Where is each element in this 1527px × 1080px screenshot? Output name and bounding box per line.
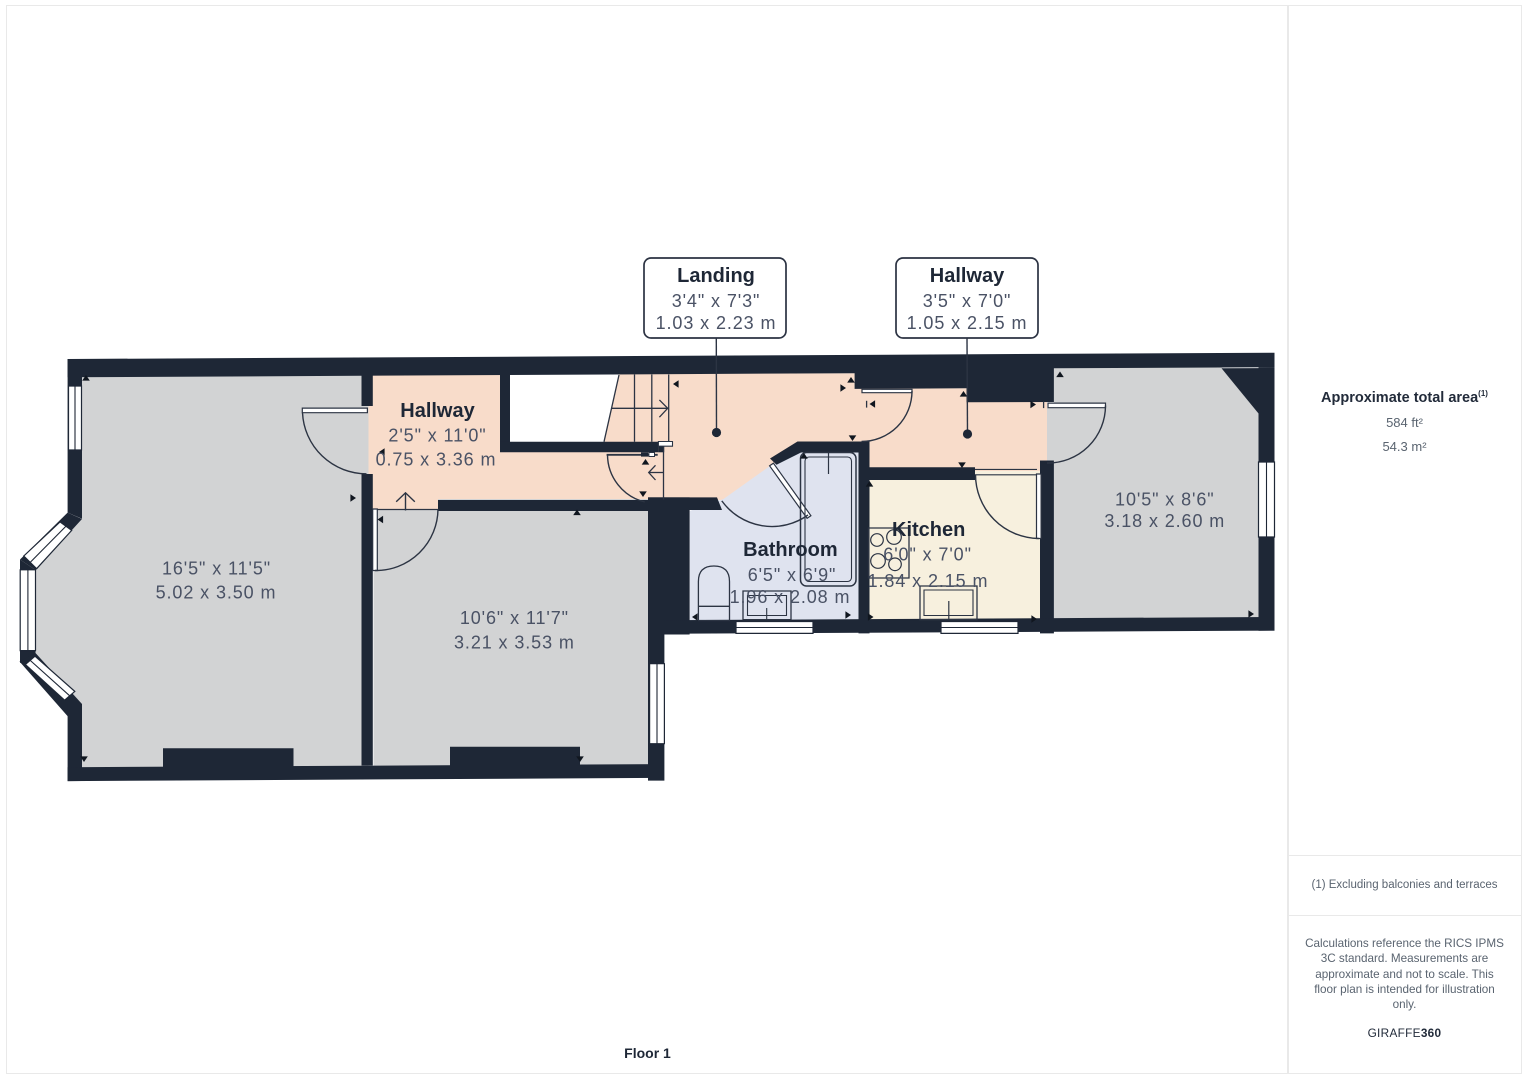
svg-text:Hallway: Hallway	[400, 400, 475, 422]
svg-text:5.02 x 3.50 m: 5.02 x 3.50 m	[156, 583, 277, 603]
svg-text:Hallway: Hallway	[930, 265, 1005, 287]
svg-text:10'6" x 11'7": 10'6" x 11'7"	[460, 608, 569, 628]
svg-text:3.21 x 3.53 m: 3.21 x 3.53 m	[454, 632, 575, 652]
svg-text:Bathroom: Bathroom	[743, 539, 837, 561]
svg-text:3'5" x 7'0": 3'5" x 7'0"	[923, 291, 1012, 311]
svg-text:2'5" x 11'0": 2'5" x 11'0"	[388, 426, 486, 446]
svg-text:1.03 x 2.23 m: 1.03 x 2.23 m	[656, 313, 777, 333]
svg-text:6'5" x 6'9": 6'5" x 6'9"	[748, 565, 837, 585]
svg-text:16'5" x 11'5": 16'5" x 11'5"	[162, 559, 271, 579]
svg-text:0.75 x 3.36 m: 0.75 x 3.36 m	[376, 450, 497, 470]
svg-text:1.84 x 2.15 m: 1.84 x 2.15 m	[868, 571, 989, 591]
svg-text:10'5" x 8'6": 10'5" x 8'6"	[1115, 489, 1215, 509]
svg-text:3.18 x 2.60 m: 3.18 x 2.60 m	[1104, 511, 1225, 531]
svg-text:6'0" x 7'0": 6'0" x 7'0"	[883, 544, 972, 564]
svg-text:1.05 x 2.15 m: 1.05 x 2.15 m	[907, 313, 1028, 333]
svg-text:3'4" x 7'3": 3'4" x 7'3"	[672, 291, 761, 311]
svg-text:1.96 x 2.08 m: 1.96 x 2.08 m	[730, 587, 851, 607]
svg-text:Landing: Landing	[677, 265, 755, 287]
svg-text:Kitchen: Kitchen	[892, 519, 965, 541]
